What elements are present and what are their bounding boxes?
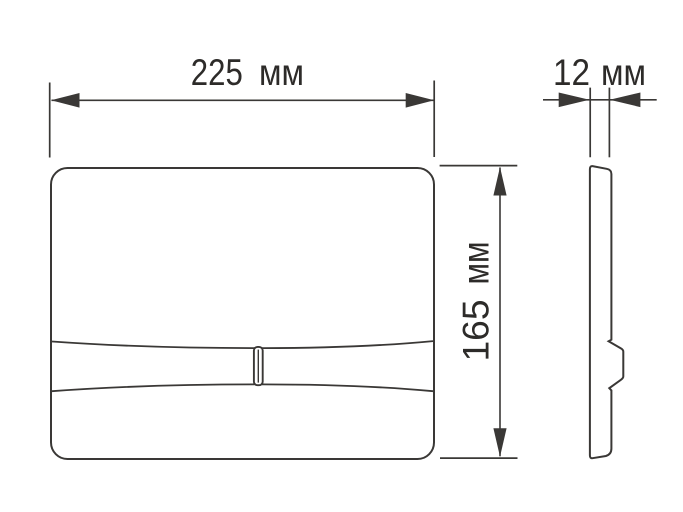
svg-text:мм: мм: [456, 242, 497, 285]
svg-text:225: 225: [191, 52, 243, 93]
svg-text:мм: мм: [259, 52, 304, 93]
svg-text:мм: мм: [601, 52, 646, 93]
svg-text:165: 165: [456, 300, 497, 362]
svg-text:12: 12: [553, 52, 590, 93]
